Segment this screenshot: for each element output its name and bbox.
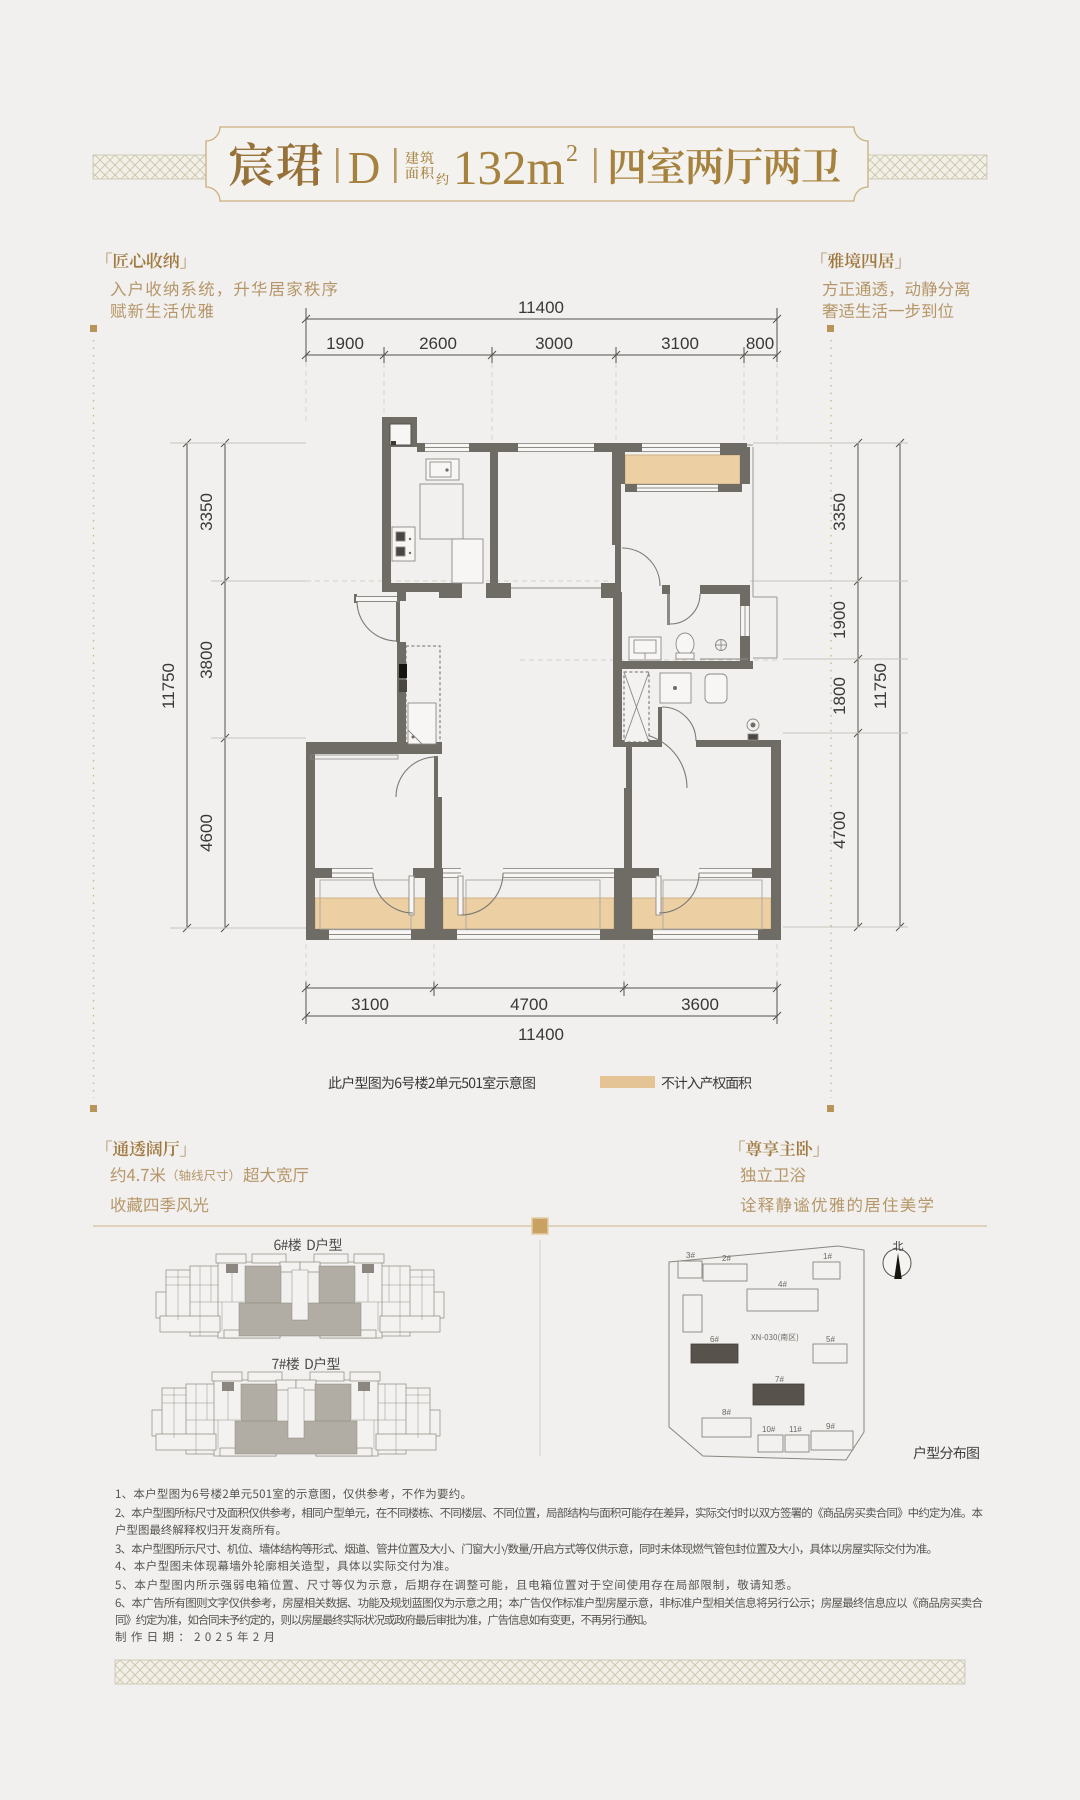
svg-text:11#: 11# — [789, 1425, 802, 1434]
svg-text:3350: 3350 — [197, 493, 216, 531]
svg-text:1900: 1900 — [326, 334, 364, 353]
svg-text:4700: 4700 — [830, 811, 849, 849]
svg-text:10#: 10# — [762, 1425, 776, 1434]
svg-text:11400: 11400 — [518, 1025, 564, 1044]
svg-text:2#: 2# — [722, 1254, 731, 1263]
svg-text:4#: 4# — [778, 1280, 787, 1289]
svg-text:3100: 3100 — [351, 995, 389, 1014]
svg-text:2: 2 — [566, 141, 578, 167]
svg-text:3350: 3350 — [830, 493, 849, 531]
svg-text:3#: 3# — [686, 1251, 695, 1260]
svg-text:4600: 4600 — [197, 814, 216, 852]
svg-text:8#: 8# — [722, 1408, 731, 1417]
svg-text:4700: 4700 — [510, 995, 548, 1014]
svg-text:11400: 11400 — [518, 298, 564, 317]
svg-text:132m: 132m — [453, 140, 565, 195]
svg-text:3600: 3600 — [681, 995, 719, 1014]
svg-text:1#: 1# — [823, 1252, 832, 1261]
svg-text:7#: 7# — [775, 1375, 784, 1384]
svg-text:11750: 11750 — [159, 663, 178, 709]
svg-text:3800: 3800 — [197, 641, 216, 679]
svg-text:6#: 6# — [710, 1335, 719, 1344]
svg-text:1900: 1900 — [830, 601, 849, 639]
svg-text:2600: 2600 — [419, 334, 457, 353]
svg-text:800: 800 — [746, 334, 774, 353]
svg-text:D: D — [348, 143, 381, 193]
svg-text:11750: 11750 — [871, 663, 890, 709]
svg-text:3000: 3000 — [535, 334, 573, 353]
svg-text:9#: 9# — [826, 1422, 835, 1431]
svg-text:1800: 1800 — [830, 677, 849, 715]
svg-text:3100: 3100 — [661, 334, 699, 353]
svg-text:5#: 5# — [826, 1335, 835, 1344]
